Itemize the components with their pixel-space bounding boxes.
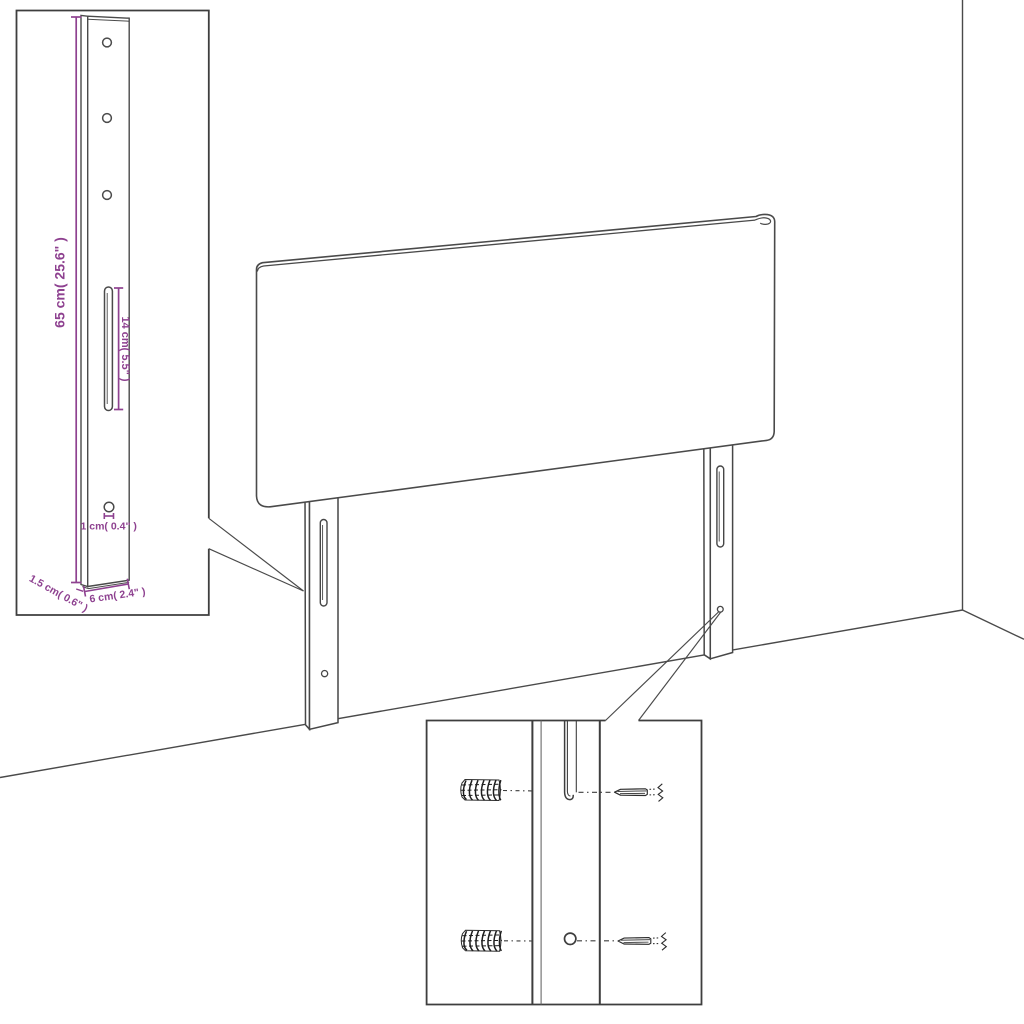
svg-text:65 cm( 25.6" ): 65 cm( 25.6" )	[52, 237, 68, 328]
svg-text:1 cm( 0.4" ): 1 cm( 0.4" )	[81, 521, 137, 533]
svg-text:14 cm( 5.5" ): 14 cm( 5.5" )	[119, 316, 131, 381]
